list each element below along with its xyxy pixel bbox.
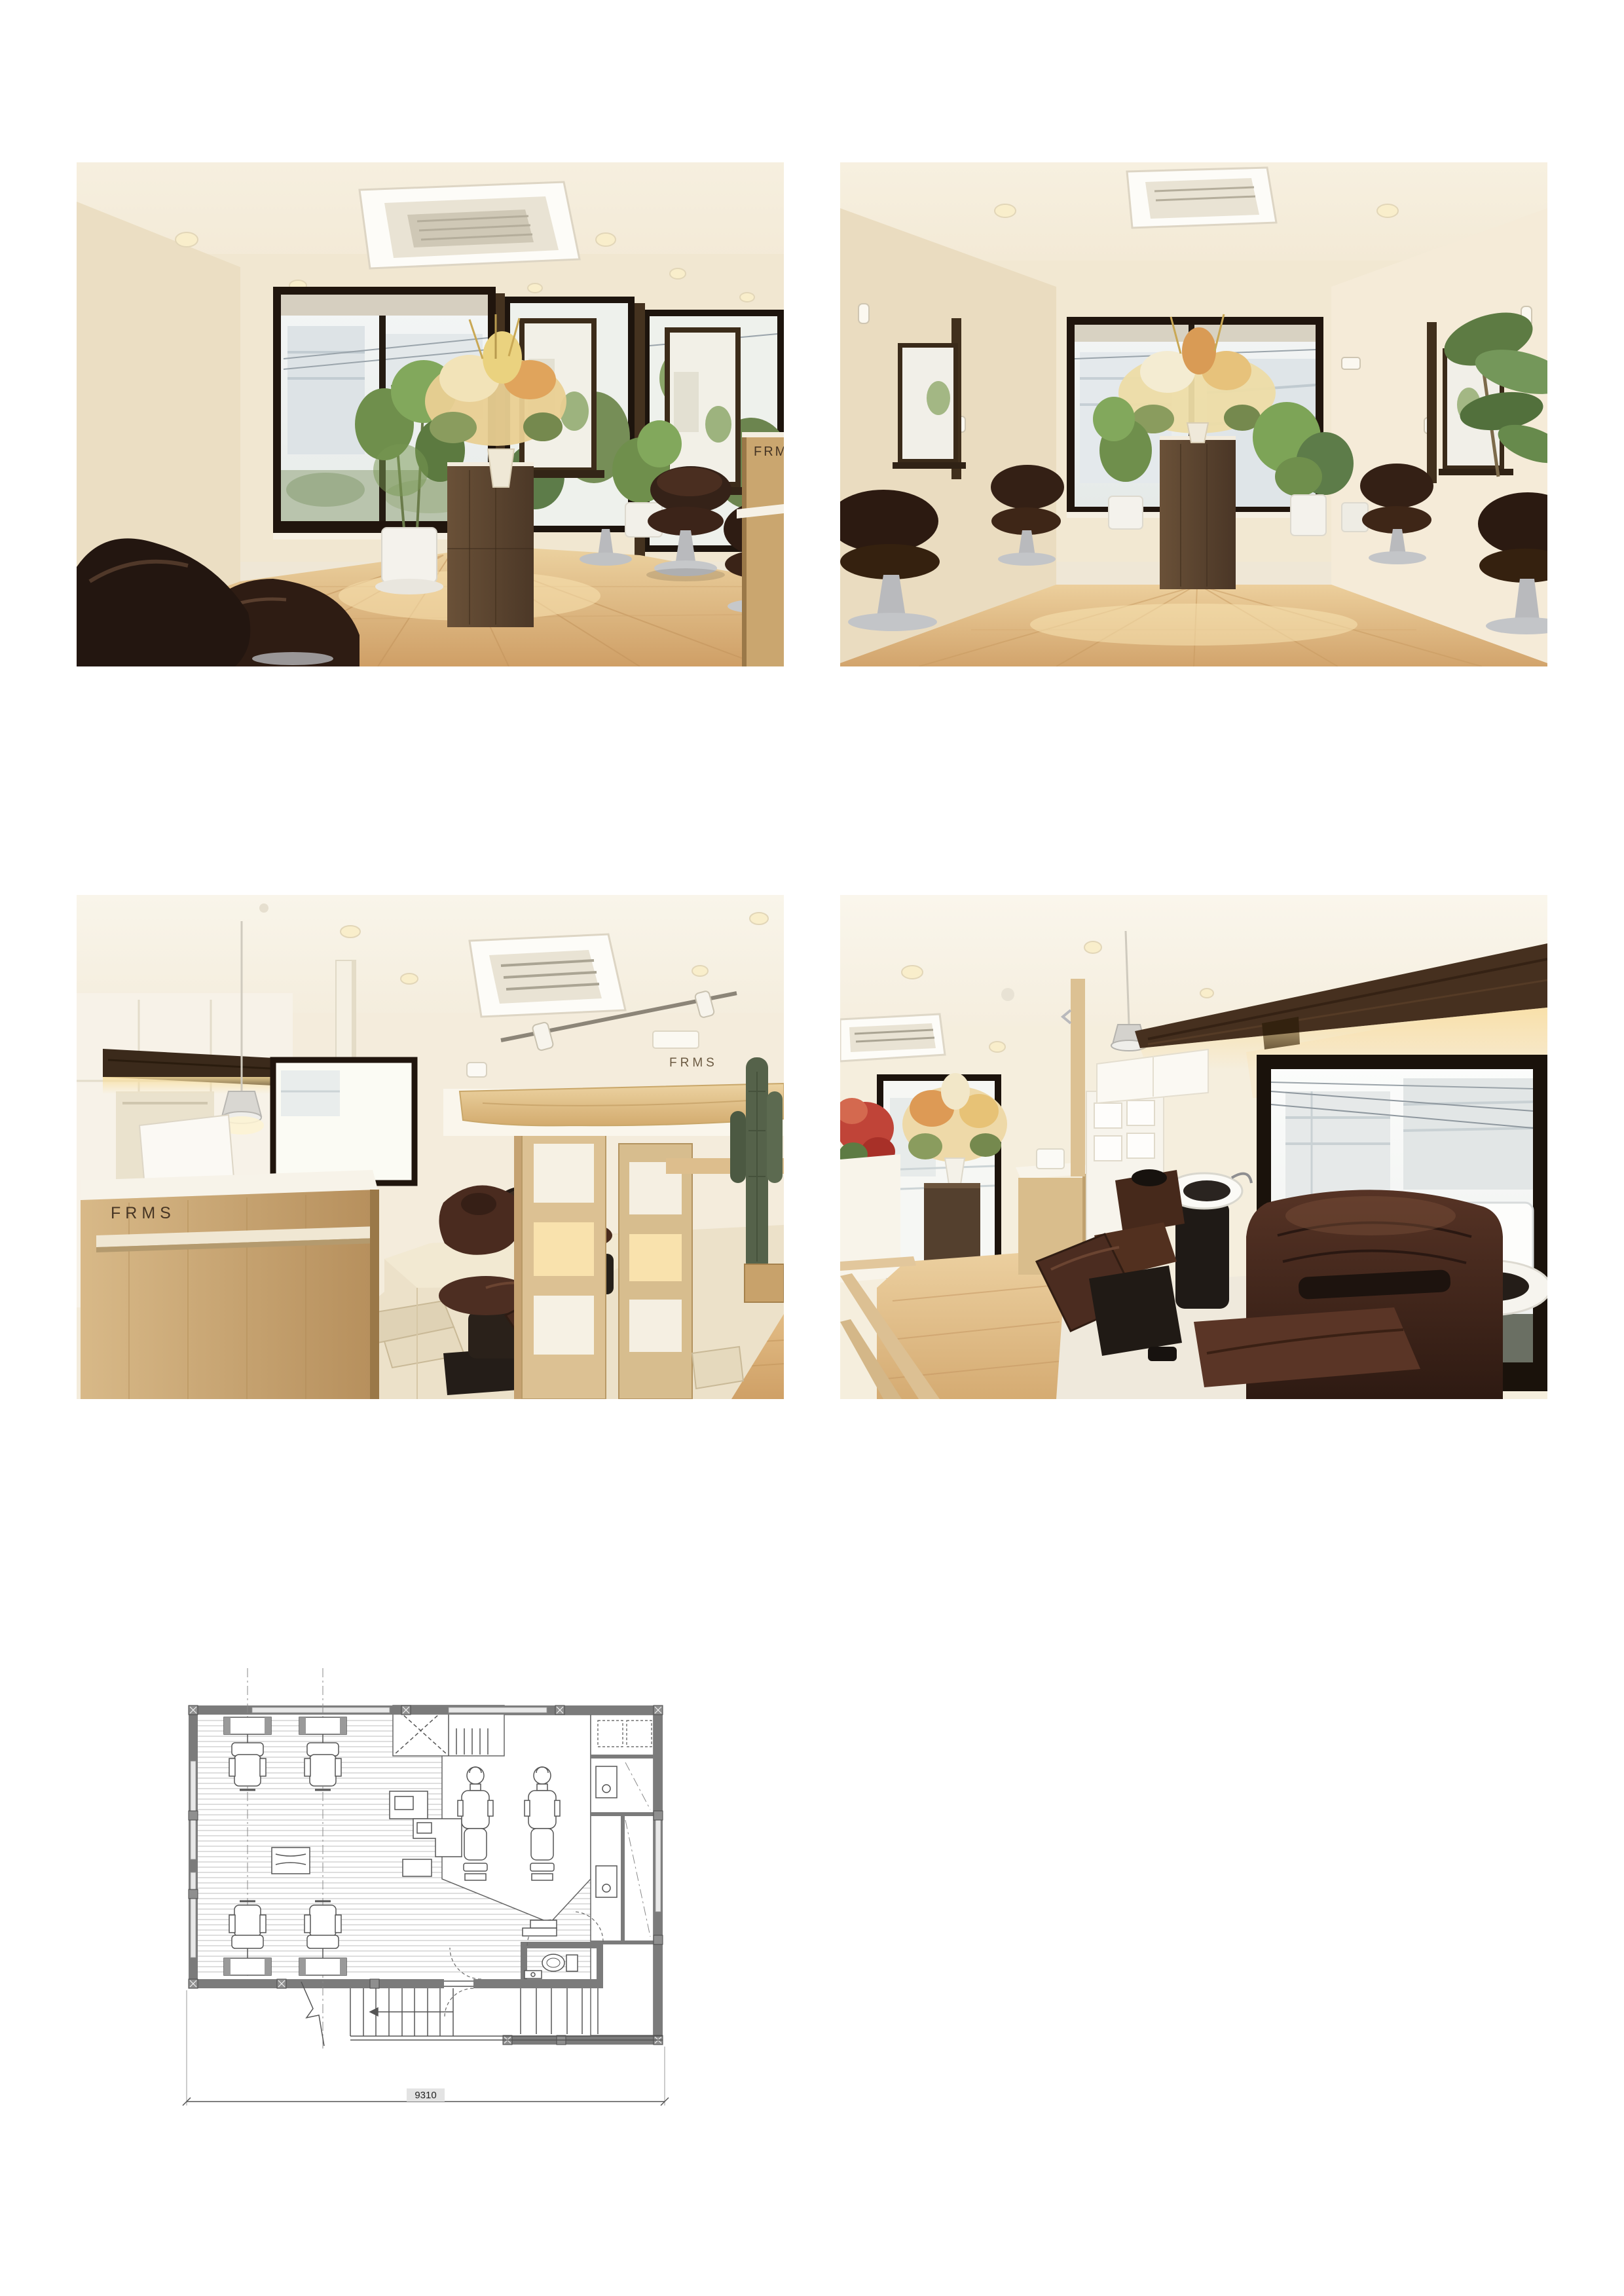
ceiling-ac-unit	[470, 934, 625, 1017]
plan-styling-station-bottom-1	[224, 1901, 271, 1975]
photo-styling-area-center-view	[840, 162, 1547, 666]
portfolio-page: FRMS	[0, 0, 1624, 2296]
center-display-cabinet	[447, 462, 534, 627]
ceiling-vent	[653, 1031, 699, 1048]
counter-logo-text: FRMS	[754, 445, 784, 459]
display-cabinet-center	[1160, 436, 1236, 589]
smoke-detector	[1001, 988, 1014, 1001]
plan-platform-steps	[523, 1920, 557, 1936]
floor-plan-drawing: 9310	[174, 1663, 691, 2121]
photo-styling-area-corner-view: FRMS	[77, 162, 784, 666]
plan-styling-station-top-1	[224, 1717, 271, 1790]
photo-reception-and-shampoo-area: FRMS FRMS	[77, 895, 784, 1399]
photo4-scene	[840, 895, 1547, 1399]
sprinkler	[259, 903, 268, 913]
wall-speaker	[467, 1063, 487, 1077]
photo3-scene: FRMS FRMS	[77, 895, 784, 1399]
floor-plan-svg: 9310	[174, 1663, 691, 2121]
photo-shampoo-chairs-closeup	[840, 895, 1547, 1399]
wall-logo-text: FRMS	[669, 1056, 718, 1070]
plan-stairs-right	[521, 1988, 598, 2034]
wood-partition-1	[514, 1125, 606, 1399]
ceiling-ac-unit	[1127, 168, 1276, 228]
plan-break-line	[301, 1982, 324, 2046]
plan-styling-station-bottom-2	[299, 1901, 346, 1975]
ceiling-ac-unit	[360, 182, 580, 268]
reception-counter-partial: FRMS	[737, 432, 784, 666]
styling-chair-right-1	[646, 466, 731, 581]
plan-dimension-label: 9310	[415, 2090, 436, 2101]
plan-display-table	[272, 1848, 310, 1874]
mirror-post-right	[1427, 322, 1437, 483]
floor-light-reflection	[1030, 604, 1357, 646]
side-window	[273, 1060, 415, 1183]
plan-styling-station-top-2	[299, 1717, 346, 1790]
styling-mirror-left	[893, 343, 966, 469]
red-flower-cluster	[840, 1098, 900, 1283]
desk-logo-text: FRMS	[111, 1204, 175, 1222]
photo2-scene	[840, 162, 1547, 666]
photo1-scene: FRMS	[77, 162, 784, 666]
ceiling-ac-unit	[840, 1014, 945, 1061]
